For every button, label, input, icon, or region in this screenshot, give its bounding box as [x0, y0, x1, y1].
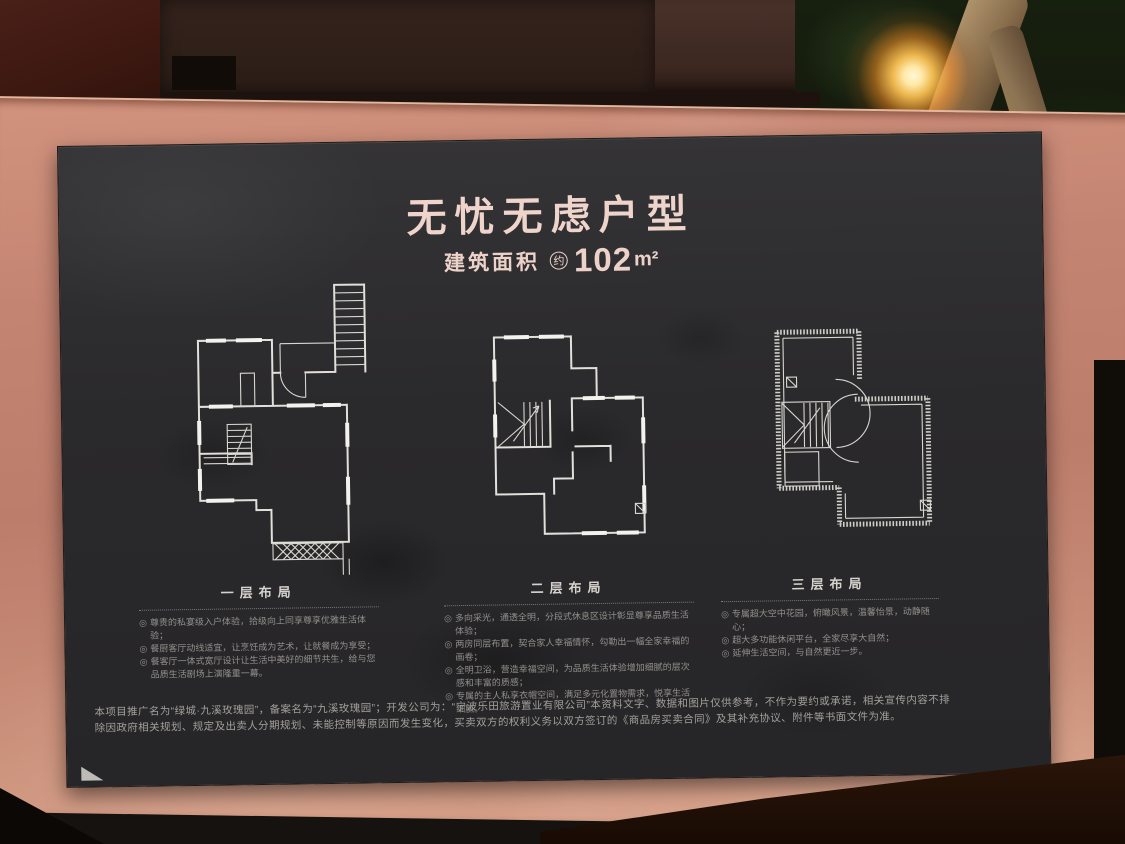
floor1-label: 一层布局 [139, 580, 379, 603]
bullet-text: 超大多功能休闲平台，全家尽享大自然； [732, 632, 894, 647]
cabinet-slot [172, 56, 236, 90]
disclaimer-text: 本项目推广名为“绿城·九溪玫瑰园”，备案名为“九溪玫瑰园”；开发公司为：“宁波乐… [94, 692, 960, 737]
right-edge-shadow [1094, 360, 1125, 800]
floorplan-board: 无忧无虑户型 建筑面积 约 102 m² [57, 131, 1051, 788]
bullet-item: ◎ 全明卫浴，营造幸福空间，为品质生活体验增加细腻的层次感和丰富的质感； [445, 661, 695, 691]
floor1-plan [173, 276, 387, 579]
bullet-text: 全明卫浴，营造幸福空间，为品质生活体验增加细腻的层次感和丰富的质感； [456, 661, 696, 691]
dotted-divider [721, 598, 939, 602]
bullet-marker: ◎ [139, 617, 147, 643]
corner-sticker [81, 766, 103, 780]
bullet-item: ◎ 两房同层布置，契合家人幸福情怀，勾勒出一幅全家幸福的画卷； [444, 635, 694, 665]
dotted-divider [444, 602, 694, 607]
floor1-closet [240, 373, 254, 406]
bullet-marker: ◎ [445, 664, 453, 690]
floor3-text-column: 三层布局 ◎ 专属超大空中花园，俯瞰风景，温馨怡景，动静随心； ◎ 超大多功能休… [720, 572, 939, 660]
bullet-text: 延伸生活空间，与自然更近一步。 [732, 645, 867, 660]
floor1-walls [197, 284, 368, 543]
bullet-text: 专属超大空中花园，俯瞰风景，温馨怡景，动静随心； [732, 605, 940, 634]
approx-circle: 约 [550, 251, 568, 269]
bullet-text: 餐客厅一体式宽厅设计让生活中美好的细节共生，给与您品质生活剧场上演隆重一幕。 [150, 652, 380, 681]
photo-scene: 无忧无虑户型 建筑面积 约 102 m² [0, 0, 1125, 844]
bullet-item: ◎ 专属超大空中花园，俯瞰风景，温馨怡景，动静随心； [721, 605, 939, 634]
bullet-marker: ◎ [721, 608, 729, 634]
dotted-divider [139, 606, 379, 611]
floor1-plan-svg [173, 276, 387, 579]
floor3-plan-svg [759, 318, 962, 556]
floor2-plan [474, 317, 678, 560]
bullet-marker: ◎ [444, 612, 452, 638]
bullet-marker: ◎ [722, 647, 730, 660]
floor2-plan-svg [474, 317, 678, 560]
bullet-item: ◎ 尊贵的私宴级入户体验，拾级向上同享尊享优雅生活体验； [139, 613, 379, 643]
floor1-text-column: 一层布局 ◎ 尊贵的私宴级入户体验，拾级向上同享尊享优雅生活体验； ◎ 餐厨客厅… [139, 580, 380, 682]
floor2-stair [498, 402, 543, 447]
bullet-marker: ◎ [140, 656, 148, 682]
floor3-label: 三层布局 [720, 572, 938, 594]
bullet-text: 尊贵的私宴级入户体验，拾级向上同享尊享优雅生活体验； [150, 613, 380, 642]
bullet-text: 多向采光，通透全明，分段式休息区设计彰显尊享品质生活体验； [455, 609, 695, 639]
floor1-door-arc [280, 372, 305, 397]
floor3-plan [759, 318, 962, 556]
bullet-marker: ◎ [139, 643, 147, 656]
floor3-small-room [785, 452, 820, 487]
bullet-item: ◎ 餐客厅一体式宽厅设计让生活中美好的细节共生，给与您品质生活剧场上演隆重一幕。 [140, 652, 380, 682]
bullet-marker: ◎ [444, 638, 452, 664]
bullet-marker: ◎ [721, 634, 729, 647]
floor3-stair [782, 402, 831, 449]
area-value: 102 [574, 240, 633, 279]
bullet-text: 两房同层布置，契合家人幸福情怀，勾勒出一幅全家幸福的画卷； [455, 635, 695, 665]
area-label: 建筑面积 [444, 246, 540, 277]
bullet-item: ◎ 延伸生活空间，与自然更近一步。 [722, 644, 940, 660]
area-unit: m² [634, 248, 659, 271]
bullet-item: ◎ 多向采光，通透全明，分段式休息区设计彰显尊享品质生活体验； [444, 609, 694, 639]
floor2-label: 二层布局 [443, 576, 693, 599]
floor2-windows [494, 335, 645, 534]
floor2-walls [494, 335, 645, 534]
floor1-ladder-rungs [279, 292, 365, 372]
